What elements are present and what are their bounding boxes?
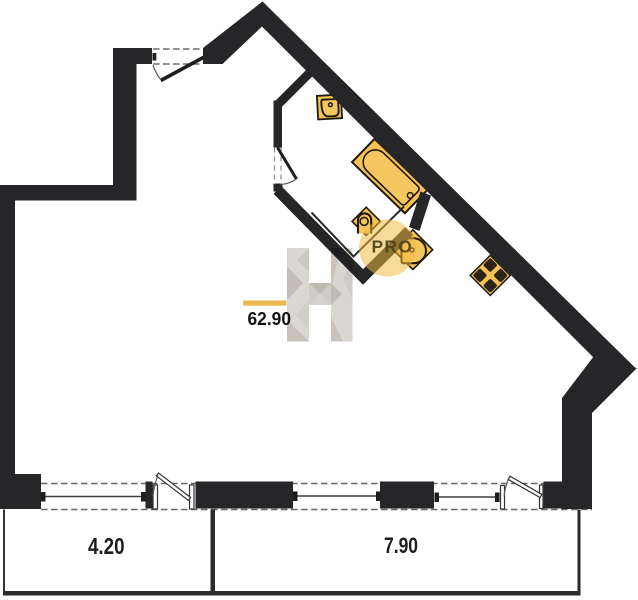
svg-text:62.90: 62.90: [248, 309, 292, 329]
svg-text:PRO: PRO: [372, 237, 414, 257]
svg-text:7.90: 7.90: [384, 533, 418, 558]
svg-text:4.20: 4.20: [88, 533, 125, 559]
